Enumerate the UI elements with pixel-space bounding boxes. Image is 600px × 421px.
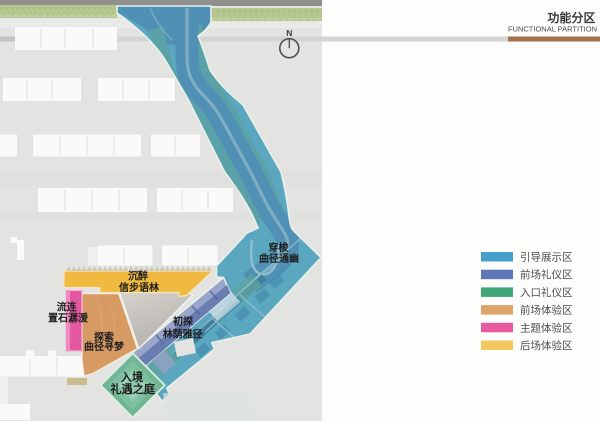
svg-text:功能分区: 功能分区 (548, 11, 596, 25)
svg-text:置石潺湲: 置石潺湲 (48, 312, 89, 325)
svg-text:曲径通幽: 曲径通幽 (259, 252, 299, 265)
svg-text:后场体验区: 后场体验区 (520, 339, 573, 352)
svg-text:信步语林: 信步语林 (119, 281, 160, 294)
svg-text:N: N (286, 28, 292, 38)
svg-text:流连: 流连 (57, 301, 78, 314)
svg-text:前场礼仪区: 前场礼仪区 (520, 268, 573, 281)
svg-text:FUNCTIONAL PARTITION: FUNCTIONAL PARTITION (508, 25, 597, 34)
svg-text:沉醉: 沉醉 (128, 270, 148, 283)
svg-text:前场体验区: 前场体验区 (520, 304, 573, 317)
svg-text:礼遇之庭: 礼遇之庭 (110, 382, 156, 396)
svg-text:穿梭: 穿梭 (269, 241, 290, 254)
svg-text:林荫雅径: 林荫雅径 (163, 328, 203, 341)
svg-text:入境: 入境 (121, 370, 143, 384)
svg-text:初探: 初探 (173, 315, 193, 328)
svg-text:引导展示区: 引导展示区 (520, 251, 573, 264)
svg-text:入口礼仪区: 入口礼仪区 (520, 286, 573, 299)
svg-text:主题体验区: 主题体验区 (520, 321, 573, 334)
svg-text:曲径寻梦: 曲径寻梦 (84, 340, 125, 353)
